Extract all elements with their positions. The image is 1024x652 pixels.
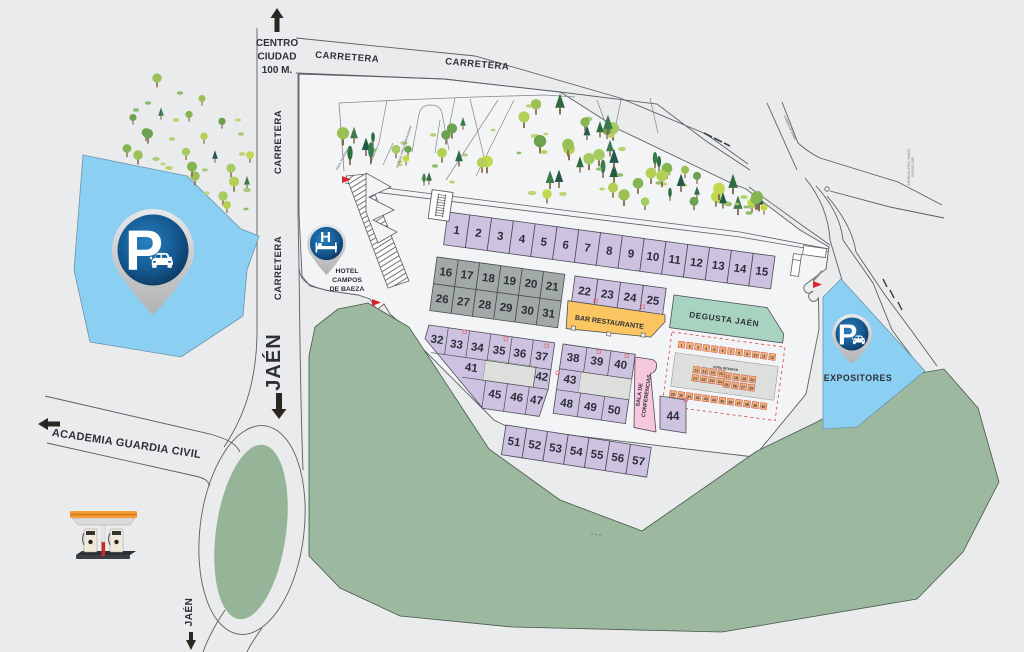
svg-text:27: 27 xyxy=(456,296,470,310)
svg-text:CARRETERA: CARRETERA xyxy=(273,110,284,174)
svg-text:28: 28 xyxy=(478,299,493,313)
svg-text:30: 30 xyxy=(520,304,534,318)
svg-text:36: 36 xyxy=(513,347,527,361)
svg-text:22: 22 xyxy=(701,378,705,382)
svg-text:55: 55 xyxy=(590,448,605,462)
svg-text:CENTRO: CENTRO xyxy=(256,38,298,49)
svg-text:33: 33 xyxy=(703,397,707,401)
svg-text:16: 16 xyxy=(439,266,453,280)
svg-text:CIUDAD: CIUDAD xyxy=(258,52,297,63)
svg-text:46: 46 xyxy=(509,391,523,405)
svg-text:50: 50 xyxy=(607,404,621,418)
svg-text:24: 24 xyxy=(623,291,638,305)
svg-text:JAÉN: JAÉN xyxy=(182,598,195,627)
svg-text:40: 40 xyxy=(761,405,765,409)
svg-text:H: H xyxy=(320,229,331,246)
svg-text:DESVÍO 1929: DESVÍO 1929 xyxy=(910,157,915,177)
svg-text:25: 25 xyxy=(724,383,728,387)
svg-text:40: 40 xyxy=(613,358,627,372)
svg-text:EXPOSITORES: EXPOSITORES xyxy=(824,373,892,383)
svg-text:14: 14 xyxy=(702,369,706,373)
svg-text:30: 30 xyxy=(679,394,683,398)
svg-text:23: 23 xyxy=(600,288,614,302)
svg-text:17: 17 xyxy=(725,375,729,379)
svg-text:19: 19 xyxy=(742,377,746,381)
svg-text:28: 28 xyxy=(749,386,753,390)
svg-text:26: 26 xyxy=(733,384,737,388)
svg-text:35: 35 xyxy=(720,399,724,403)
svg-text:39: 39 xyxy=(590,355,604,369)
svg-text:CARRETERA: CARRETERA xyxy=(273,236,284,300)
svg-text:39: 39 xyxy=(753,404,757,408)
svg-text:43: 43 xyxy=(563,373,577,387)
svg-text:33: 33 xyxy=(449,338,463,352)
svg-text:31: 31 xyxy=(541,307,556,321)
svg-text:32: 32 xyxy=(430,333,444,347)
svg-text:51: 51 xyxy=(507,436,522,450)
svg-text:26: 26 xyxy=(435,293,449,307)
svg-text:20: 20 xyxy=(524,278,538,292)
svg-text:52: 52 xyxy=(527,439,541,453)
svg-text:18: 18 xyxy=(734,376,738,380)
svg-text:48: 48 xyxy=(559,397,574,411)
svg-text:JAÉN: JAÉN xyxy=(262,333,285,390)
svg-text:56: 56 xyxy=(610,452,624,466)
svg-text:45: 45 xyxy=(488,388,503,402)
svg-text:12: 12 xyxy=(770,355,774,359)
svg-text:10: 10 xyxy=(646,251,660,265)
svg-text:42: 42 xyxy=(535,371,549,385)
svg-text:13: 13 xyxy=(711,259,725,273)
svg-text:CAMPOS: CAMPOS xyxy=(332,277,362,284)
svg-text:P: P xyxy=(838,320,857,352)
svg-text:12: 12 xyxy=(689,257,703,271)
svg-text:20: 20 xyxy=(750,378,754,382)
svg-text:22: 22 xyxy=(577,285,591,299)
svg-text:15: 15 xyxy=(755,265,770,279)
svg-text:36: 36 xyxy=(728,400,732,404)
svg-text:DE BAEZA: DE BAEZA xyxy=(330,286,365,293)
svg-text:10: 10 xyxy=(753,353,757,357)
svg-text:11: 11 xyxy=(762,354,766,358)
svg-text:13: 13 xyxy=(694,368,698,372)
svg-text:53: 53 xyxy=(548,442,562,456)
svg-text:21: 21 xyxy=(693,377,697,381)
svg-text:25: 25 xyxy=(646,294,661,308)
svg-text:15: 15 xyxy=(710,371,714,375)
svg-text:P: P xyxy=(125,219,163,283)
svg-text:38: 38 xyxy=(566,352,581,366)
svg-text:44: 44 xyxy=(667,411,680,423)
svg-text:100 M.: 100 M. xyxy=(262,65,293,76)
svg-text:37: 37 xyxy=(736,401,740,405)
svg-text:19: 19 xyxy=(502,275,516,289)
svg-text:38: 38 xyxy=(745,402,749,406)
svg-text:14: 14 xyxy=(733,262,748,276)
svg-text:27: 27 xyxy=(741,385,745,389)
svg-text:17: 17 xyxy=(460,269,474,283)
svg-text:47: 47 xyxy=(529,394,543,408)
svg-text:16: 16 xyxy=(719,372,723,376)
svg-text:57: 57 xyxy=(631,455,645,469)
svg-text:24: 24 xyxy=(718,380,722,384)
svg-text:54: 54 xyxy=(569,445,584,459)
svg-text:34: 34 xyxy=(712,398,716,402)
svg-text:37: 37 xyxy=(534,350,548,364)
svg-text:49: 49 xyxy=(583,401,597,415)
svg-text:23: 23 xyxy=(709,379,713,383)
svg-text:32: 32 xyxy=(695,396,699,400)
svg-text:35: 35 xyxy=(492,344,507,358)
svg-text:21: 21 xyxy=(545,281,560,295)
svg-text:11: 11 xyxy=(668,254,682,268)
svg-text:HOTEL: HOTEL xyxy=(335,268,358,275)
svg-text:34: 34 xyxy=(470,341,485,355)
svg-text:29: 29 xyxy=(671,392,675,396)
svg-text:41: 41 xyxy=(464,362,479,376)
svg-text:29: 29 xyxy=(499,302,513,316)
svg-text:18: 18 xyxy=(481,272,496,286)
